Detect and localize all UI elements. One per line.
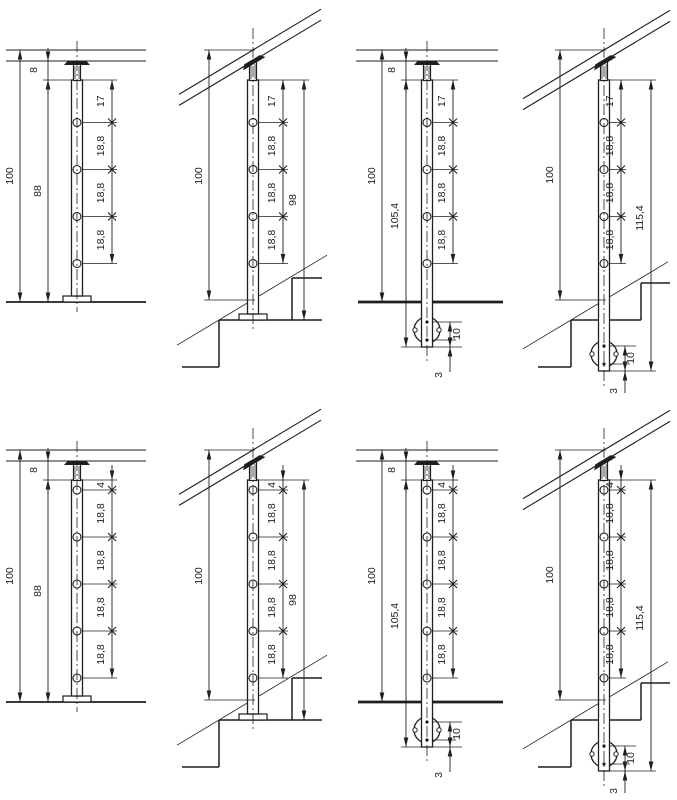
dimension-label: 8	[386, 467, 398, 473]
dimension-label: 18,8	[95, 503, 107, 524]
dim-arrow	[649, 480, 654, 490]
dim-arrow	[110, 254, 115, 264]
dim-arrow	[380, 50, 385, 60]
dim-arrow	[46, 80, 51, 90]
dim-arrow	[207, 691, 212, 701]
dim-arrow	[619, 669, 624, 679]
dim-arrow	[451, 471, 456, 481]
dimension-label: 18,8	[436, 230, 448, 251]
dimension-label: 18,8	[266, 136, 278, 157]
dim-arrow	[18, 293, 23, 303]
dim-arrow	[448, 347, 453, 357]
dim-arrow	[649, 80, 654, 90]
dimension-label: 18,8	[436, 503, 448, 524]
dimension-label: 10	[451, 328, 463, 340]
dim-arrow	[451, 254, 456, 264]
dimension-label: 18,8	[604, 550, 616, 571]
dimension-label: 18,8	[266, 230, 278, 251]
dim-arrow	[110, 669, 115, 679]
flange-bolt-hole	[437, 328, 441, 332]
dimension-label: 18,8	[436, 644, 448, 665]
dim-arrow	[46, 693, 51, 703]
dim-arrow	[281, 80, 286, 90]
dimension-label: 18,8	[95, 230, 107, 251]
dim-arrow	[451, 669, 456, 679]
dimension-label: 18,8	[604, 644, 616, 665]
dimension-label: 8	[28, 67, 40, 73]
dim-arrow	[380, 293, 385, 303]
drawing-post-floor-side-mount-4-holes: 100105,481718,818,818,8103	[338, 0, 508, 400]
dim-arrow	[18, 50, 23, 60]
dim-arrow	[404, 52, 409, 62]
dim-arrow	[46, 293, 51, 303]
flange-bolt-hole	[437, 728, 441, 732]
dim-arrow	[404, 80, 409, 90]
dimension-label: 18,8	[95, 183, 107, 204]
dim-arrow	[281, 669, 286, 679]
dim-arrow	[623, 371, 628, 381]
handrail-top	[523, 10, 670, 98]
dimension-label: 18,8	[436, 597, 448, 618]
stair-pitch-line	[523, 662, 668, 749]
dim-arrow	[619, 471, 624, 481]
dim-arrow	[558, 691, 563, 701]
dimension-label: 18,8	[604, 503, 616, 524]
dim-arrow	[404, 738, 409, 748]
dimension-label: 100	[193, 167, 205, 185]
dimension-label: 3	[433, 772, 445, 778]
dimension-label: 18,8	[436, 183, 448, 204]
dimension-label: 18,8	[266, 550, 278, 571]
drawing-post-floor-top-mount-5-holes: 100888418,818,818,818,8	[0, 400, 169, 800]
dimension-label: 17	[604, 95, 616, 107]
dimension-label: 10	[625, 352, 637, 364]
dimension-label: 105,4	[389, 603, 401, 629]
dimension-label: 100	[4, 167, 16, 185]
flange-bolt-hole	[614, 752, 618, 756]
dim-arrow	[46, 480, 51, 490]
dimension-label: 18,8	[266, 183, 278, 204]
flange-bolt-hole	[413, 728, 417, 732]
dimension-label: 17	[95, 95, 107, 107]
dim-arrow	[451, 80, 456, 90]
dimension-label: 100	[544, 166, 556, 184]
dim-arrow	[404, 452, 409, 462]
dimension-label: 8	[28, 467, 40, 473]
dimension-label: 3	[608, 388, 620, 394]
dimension-label: 100	[193, 567, 205, 585]
dimension-label: 18,8	[266, 597, 278, 618]
drawing-post-floor-top-mount-4-holes: 1008881718,818,818,8	[0, 0, 169, 400]
dim-arrow	[619, 254, 624, 264]
dimension-label: 18,8	[604, 230, 616, 251]
dimension-label: 17	[266, 95, 278, 107]
dim-arrow	[110, 471, 115, 481]
dim-arrow	[281, 254, 286, 264]
dimension-label: 4	[266, 482, 278, 488]
dimension-label: 3	[433, 372, 445, 378]
dimension-label: 18,8	[436, 550, 448, 571]
stair-pitch-line	[523, 262, 668, 349]
dim-arrow	[302, 711, 307, 721]
dim-arrow	[207, 291, 212, 301]
dimension-label: 98	[287, 594, 299, 606]
dim-arrow	[281, 471, 286, 481]
dimension-label: 100	[366, 567, 378, 585]
dimension-label: 4	[95, 482, 107, 488]
drawing-post-stair-top-mount-4-holes: 1001718,818,818,898	[169, 0, 338, 400]
dimension-label: 100	[366, 167, 378, 185]
dim-arrow	[302, 80, 307, 90]
dim-arrow	[404, 480, 409, 490]
dim-arrow	[18, 450, 23, 460]
dimension-label: 18,8	[436, 136, 448, 157]
dimension-label: 10	[625, 752, 637, 764]
dimension-label: 18,8	[266, 644, 278, 665]
dimension-label: 4	[604, 482, 616, 488]
dim-arrow	[380, 693, 385, 703]
dimension-label: 98	[287, 194, 299, 206]
dimension-label: 105,4	[389, 203, 401, 229]
dimension-label: 10	[451, 728, 463, 740]
dim-arrow	[46, 452, 51, 462]
dim-arrow	[302, 311, 307, 321]
dimension-label: 4	[436, 482, 448, 488]
dimension-label: 115,4	[634, 605, 646, 631]
dim-arrow	[558, 291, 563, 301]
drawing-post-stair-side-mount-4-holes: 1001718,818,818,8115,4103	[508, 0, 677, 400]
dim-arrow	[404, 338, 409, 348]
dim-arrow	[110, 80, 115, 90]
dimension-label: 18,8	[604, 183, 616, 204]
dimension-label: 100	[4, 567, 16, 585]
flange-bolt-hole	[413, 328, 417, 332]
dim-arrow	[207, 50, 212, 60]
dimension-label: 88	[32, 185, 44, 197]
dim-arrow	[448, 747, 453, 757]
dim-arrow	[558, 450, 563, 460]
dimension-label: 8	[386, 67, 398, 73]
dimension-label: 18,8	[95, 550, 107, 571]
dim-arrow	[649, 762, 654, 772]
flange-bolt-hole	[590, 752, 594, 756]
dimension-label: 18,8	[266, 503, 278, 524]
dimension-label: 18,8	[95, 597, 107, 618]
dim-arrow	[649, 362, 654, 372]
dimension-label: 88	[32, 585, 44, 597]
dimension-label: 100	[544, 566, 556, 584]
flange-bolt-hole	[614, 352, 618, 356]
dimension-label: 3	[608, 788, 620, 794]
flange-bolt-hole	[590, 352, 594, 356]
dimension-label: 115,4	[634, 205, 646, 231]
dim-arrow	[558, 50, 563, 60]
dimension-label: 18,8	[604, 597, 616, 618]
drawing-post-floor-side-mount-5-holes: 100105,48418,818,818,818,8103	[338, 400, 508, 800]
dim-arrow	[623, 771, 628, 781]
dim-arrow	[207, 450, 212, 460]
dim-arrow	[46, 52, 51, 62]
dim-arrow	[380, 450, 385, 460]
dim-arrow	[302, 480, 307, 490]
drawing-sheet: 1008881718,818,818,81001718,818,818,8981…	[0, 0, 677, 800]
dimension-label: 18,8	[604, 136, 616, 157]
dim-arrow	[18, 693, 23, 703]
dimension-label: 18,8	[95, 644, 107, 665]
drawing-post-stair-top-mount-5-holes: 100418,818,818,818,898	[169, 400, 338, 800]
dimension-label: 17	[436, 95, 448, 107]
dimension-label: 18,8	[95, 136, 107, 157]
handrail-top	[523, 410, 670, 498]
dim-arrow	[619, 80, 624, 90]
drawing-post-stair-side-mount-5-holes: 100418,818,818,818,8115,4103	[508, 400, 677, 800]
